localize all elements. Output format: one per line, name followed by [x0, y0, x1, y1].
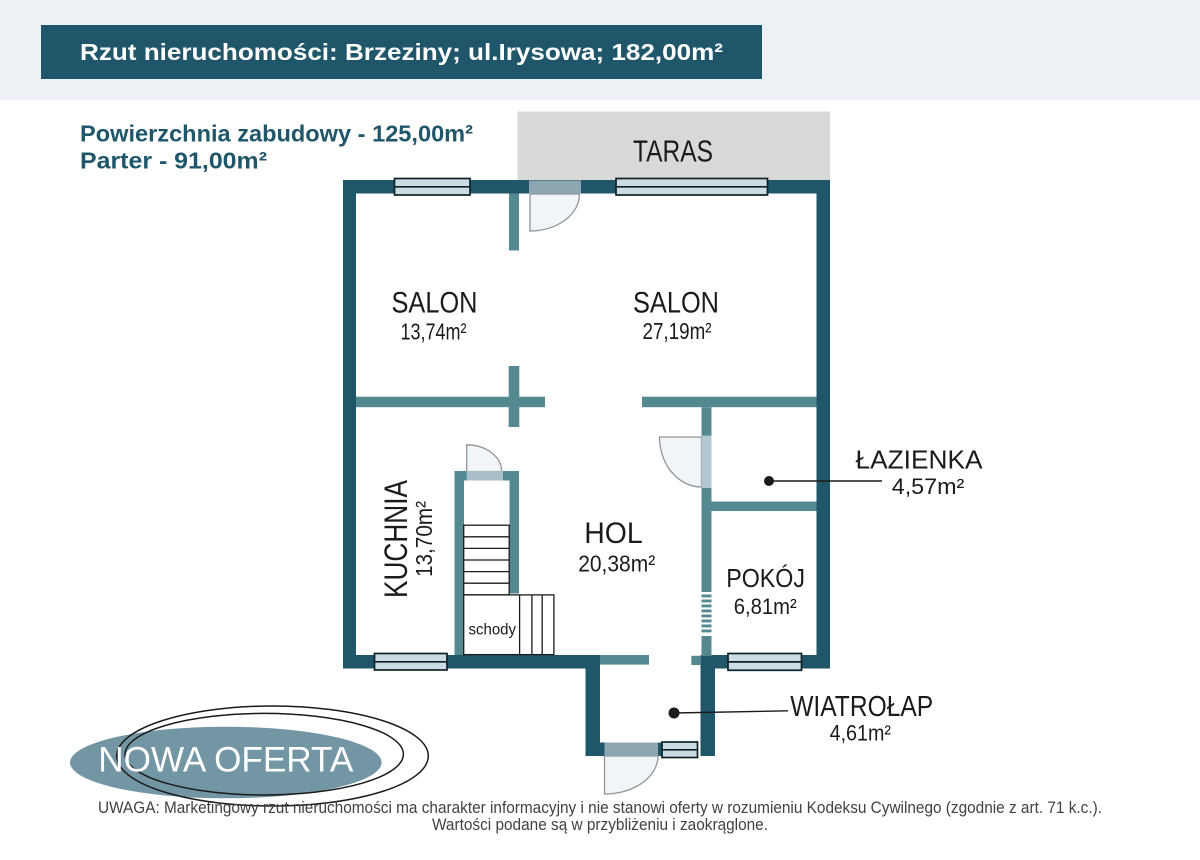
svg-text:27,19m²: 27,19m²: [643, 318, 712, 344]
svg-text:UWAGA: Marketingowy rzut nieru: UWAGA: Marketingowy rzut nieruchomości m…: [98, 799, 1102, 817]
svg-text:NOWA OFERTA: NOWA OFERTA: [98, 741, 354, 780]
svg-text:Rzut nieruchomości: Brzeziny;: Rzut nieruchomości: Brzeziny; ul.Irysowa…: [80, 39, 723, 65]
svg-text:SALON: SALON: [633, 287, 719, 320]
svg-text:4,57m²: 4,57m²: [892, 474, 965, 499]
svg-text:schody: schody: [469, 622, 517, 639]
svg-text:20,38m²: 20,38m²: [578, 550, 655, 576]
svg-text:Parter - 91,00m²: Parter - 91,00m²: [80, 148, 267, 174]
svg-text:POKÓJ: POKÓJ: [726, 563, 805, 593]
svg-text:Powierzchnia zabudowy - 125,00: Powierzchnia zabudowy - 125,00m²: [80, 121, 473, 147]
svg-text:ŁAZIENKA: ŁAZIENKA: [856, 444, 984, 474]
svg-text:KUCHNIA: KUCHNIA: [378, 479, 414, 598]
svg-text:13,74m²: 13,74m²: [401, 319, 467, 345]
svg-text:4,61m²: 4,61m²: [830, 721, 891, 746]
svg-text:13,70m²: 13,70m²: [411, 501, 437, 577]
svg-text:HOL: HOL: [584, 517, 643, 550]
svg-text:6,81m²: 6,81m²: [734, 594, 797, 619]
svg-text:SALON: SALON: [392, 287, 478, 320]
svg-text:WIATROŁAP: WIATROŁAP: [790, 691, 933, 723]
svg-text:TARAS: TARAS: [633, 134, 713, 169]
svg-text:Wartości podane są w przybliże: Wartości podane są w przybliżeniu i zaok…: [432, 816, 768, 834]
